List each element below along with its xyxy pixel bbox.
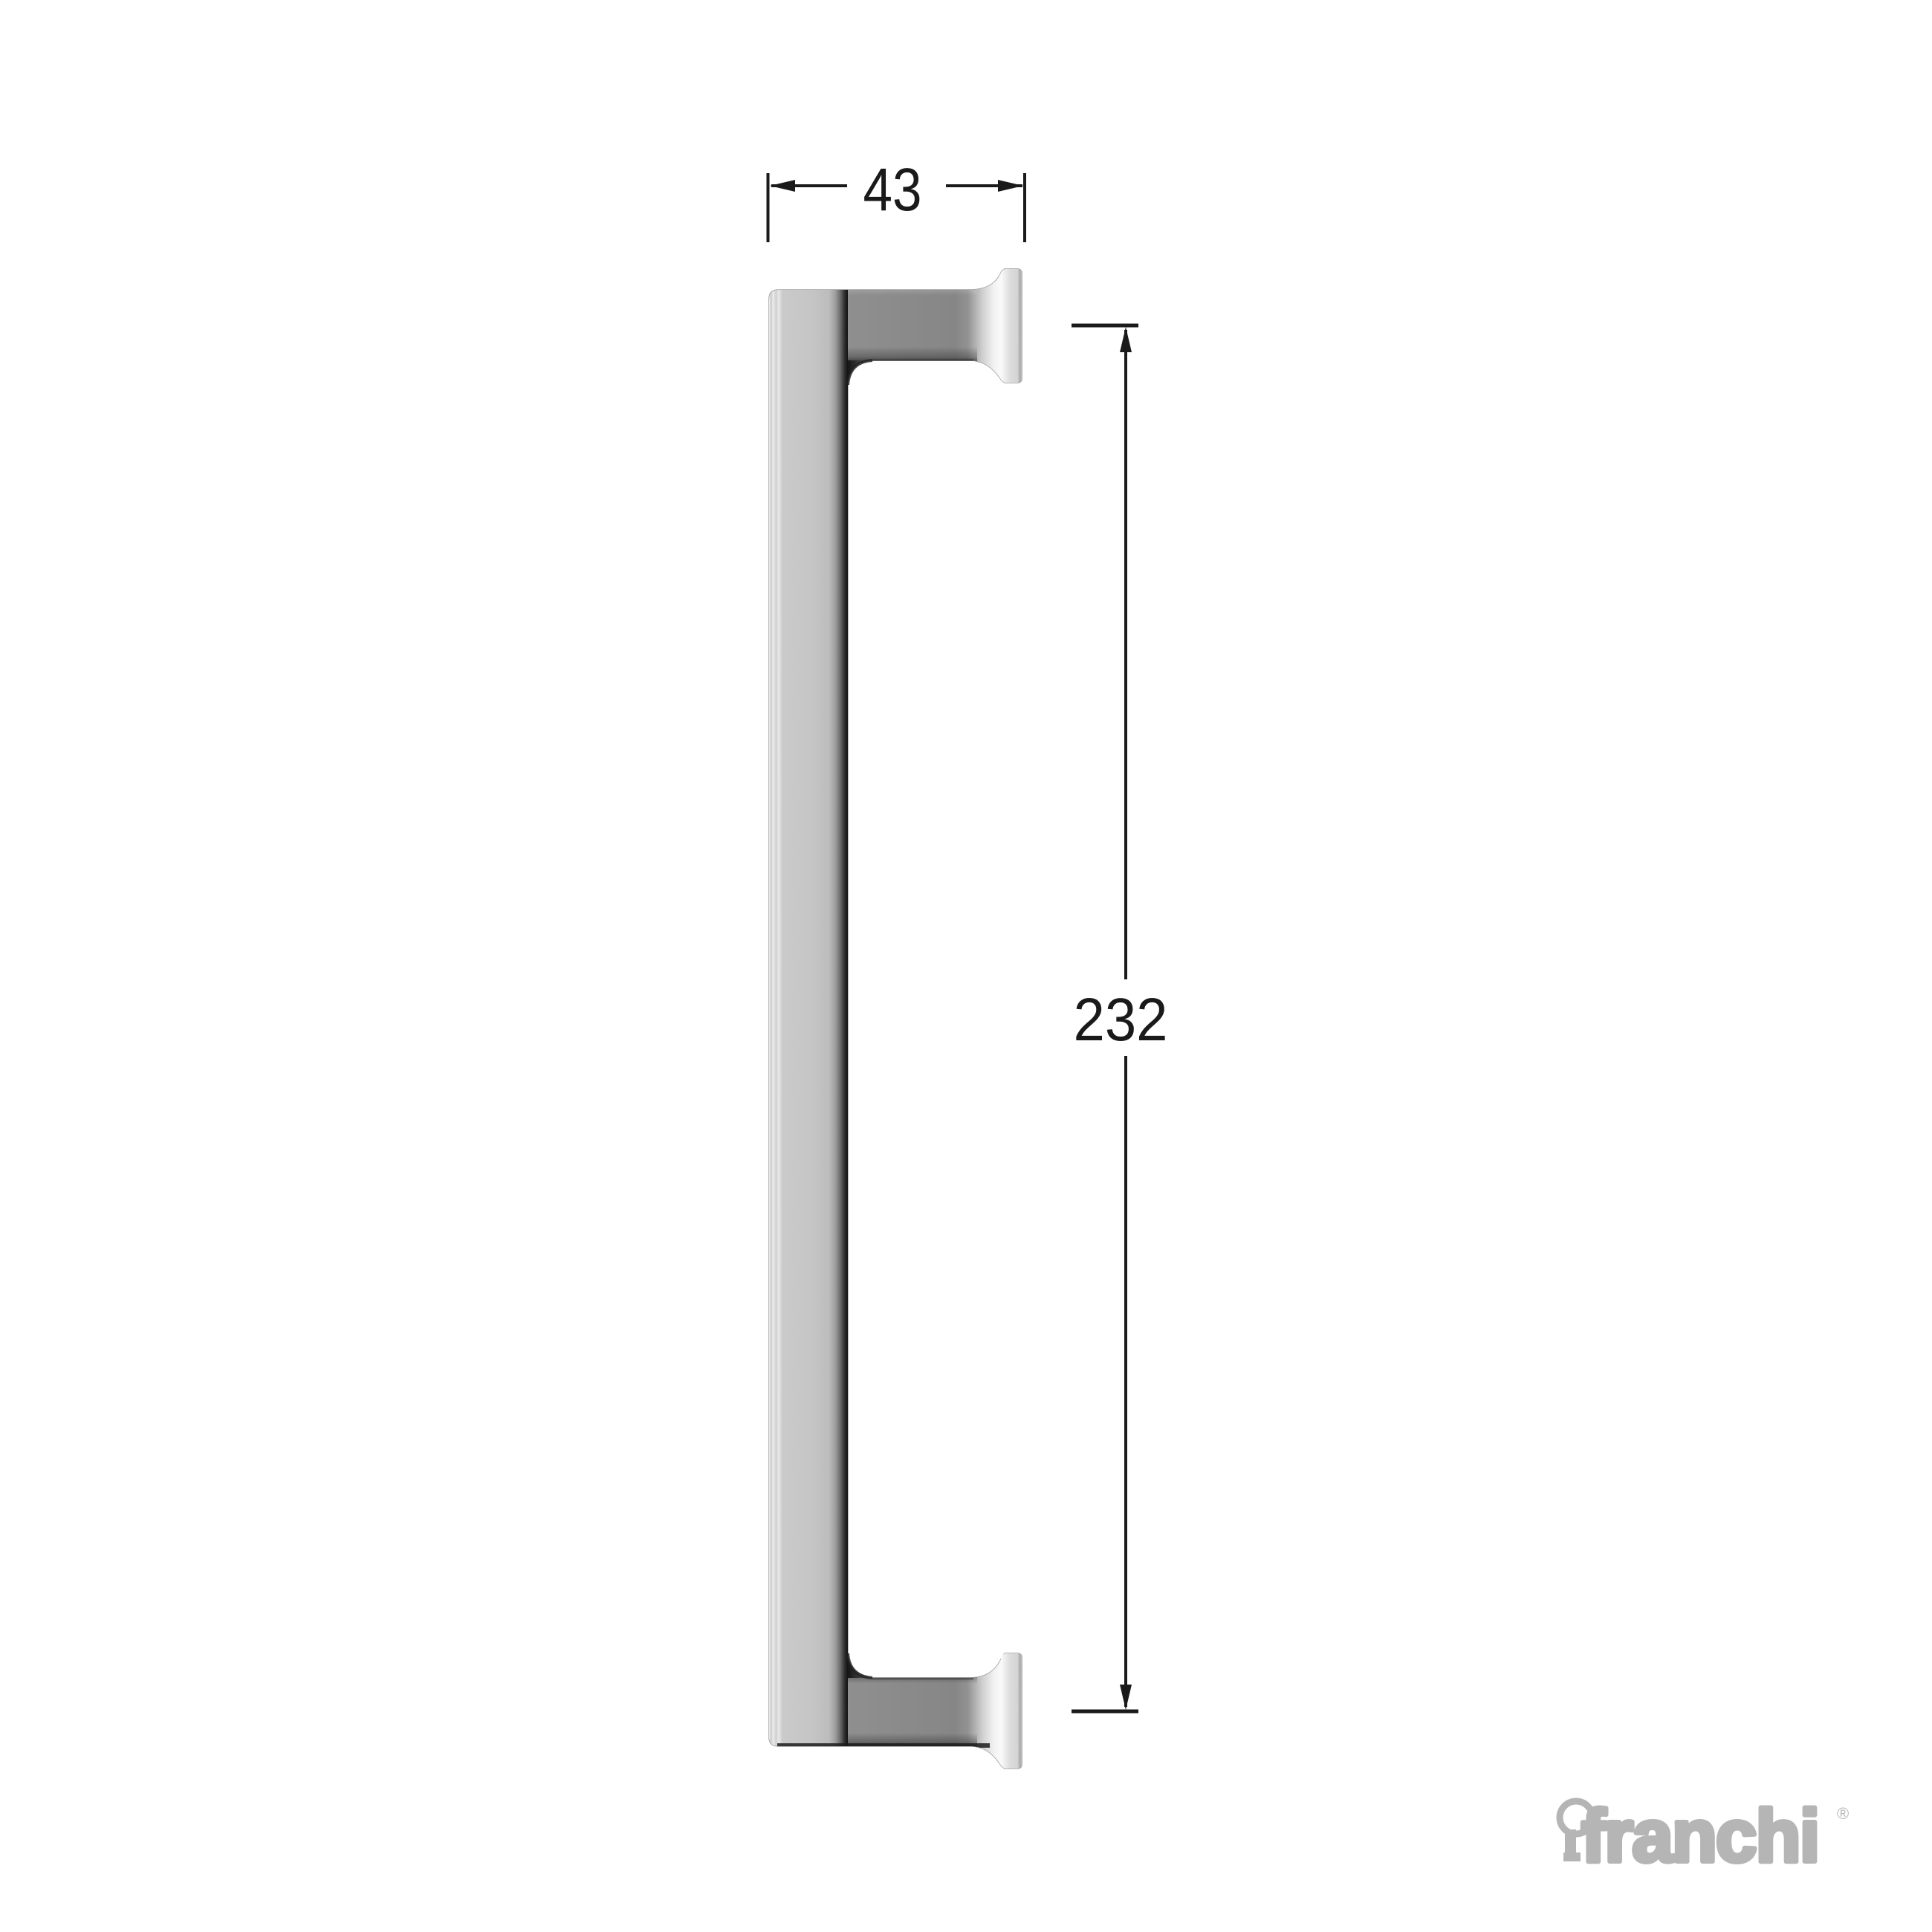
handle-top-flange (1001, 269, 1022, 383)
brand-logo-text: franchi (1581, 1795, 1818, 1878)
brand-logo: franchi ® (1560, 1795, 1849, 1878)
width-dimension-label: 43 (863, 156, 922, 224)
registered-trademark: ® (1837, 1804, 1849, 1823)
arrowhead-up-icon (1120, 327, 1132, 352)
arrowhead-down-icon (1120, 1685, 1132, 1710)
top-post-shading (848, 289, 977, 361)
handle-grip-bar (769, 290, 848, 1746)
height-dimension-label: 232 (1074, 986, 1168, 1054)
arrowhead-right-icon (998, 180, 1023, 192)
bottom-edge-shadow-line (777, 1743, 990, 1748)
handle-bottom-flange (1001, 1653, 1022, 1769)
width-dimension: 43 (768, 156, 1025, 242)
height-dimension: 232 (1072, 325, 1168, 1711)
arrowhead-left-icon (770, 180, 795, 192)
bottom-post-shading (848, 1677, 977, 1747)
handle-profile-drawing (769, 269, 1022, 1770)
diagram-canvas: 43 232 franchi ® (0, 0, 1932, 1932)
